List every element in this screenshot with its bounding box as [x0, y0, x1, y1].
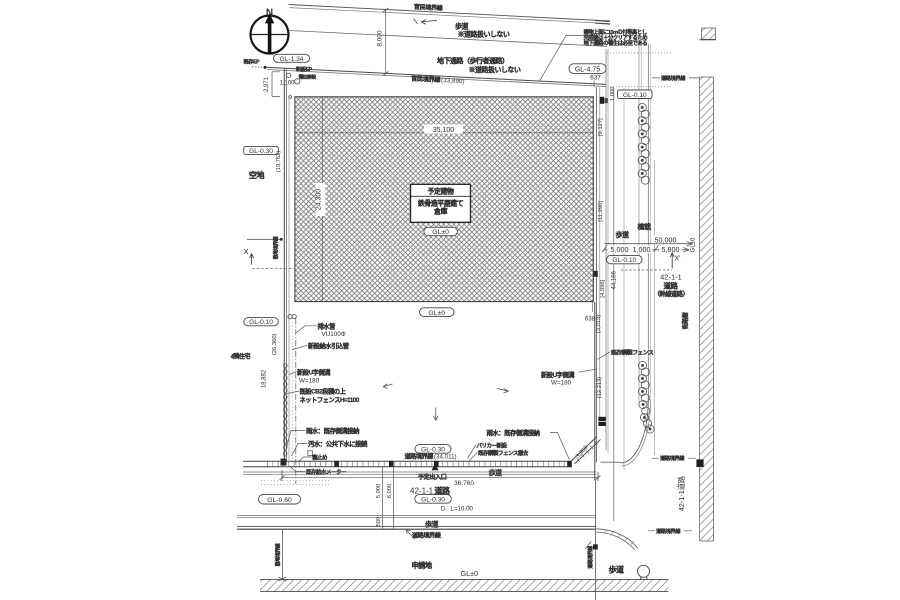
svg-text:バリカー新設: バリカー新設 — [477, 441, 508, 449]
svg-text:汚水：公共下水に接続: 汚水：公共下水に接続 — [308, 439, 368, 448]
svg-text:ネットフェンスH=1100: ネットフェンスH=1100 — [300, 396, 360, 404]
svg-text:道路境界線: 道路境界線 — [656, 527, 681, 535]
svg-text:638: 638 — [585, 316, 596, 322]
svg-text:空地: 空地 — [249, 170, 264, 180]
svg-text:道路境界線: 道路境界線 — [412, 532, 442, 540]
svg-text:5,000: 5,000 — [376, 484, 382, 499]
svg-text:42-1-1: 42-1-1 — [660, 273, 682, 282]
svg-text:敷地境界線: 敷地境界線 — [274, 543, 281, 566]
svg-text:4隣住宅: 4隣住宅 — [231, 353, 251, 361]
svg-text:既存鋼製フェンス撤去: 既存鋼製フェンス撤去 — [478, 449, 529, 457]
svg-text:D. L=10.00: D. L=10.00 — [441, 506, 474, 513]
svg-text:新設U字側溝: 新設U字側溝 — [297, 367, 331, 376]
svg-text:GL-0.60: GL-0.60 — [267, 497, 292, 504]
svg-text:歩道: 歩道 — [609, 565, 624, 575]
svg-text:排水管: 排水管 — [318, 322, 337, 331]
svg-text:寝止め: 寝止め — [311, 454, 328, 462]
svg-text:[4,998]: [4,998] — [600, 279, 606, 297]
svg-text:GL-0.30: GL-0.30 — [421, 497, 445, 504]
svg-text:※道路扱いしない: ※道路扱いしない — [458, 30, 510, 39]
svg-text:6,000: 6,000 — [387, 484, 393, 499]
svg-text:新設給水引込管: 新設給水引込管 — [308, 341, 350, 350]
svg-text:申請地: 申請地 — [412, 561, 433, 570]
svg-text:雨水：既存側溝接納: 雨水：既存側溝接納 — [487, 428, 541, 437]
svg-text:地下通路（歩行者通路）: 地下通路（歩行者通路） — [437, 56, 509, 65]
svg-text:42-1-1道路: 42-1-1道路 — [677, 476, 686, 511]
svg-text:道路境界線: 道路境界線 — [660, 454, 685, 462]
svg-text:36,760: 36,760 — [454, 480, 474, 487]
svg-text:既存鋼製フェンス: 既存鋼製フェンス — [611, 348, 654, 356]
svg-text:GL±0: GL±0 — [461, 569, 479, 578]
svg-text:1,100: 1,100 — [280, 80, 296, 86]
svg-text:2,971: 2,971 — [264, 76, 270, 92]
svg-text:道路: 道路 — [435, 486, 451, 496]
svg-text:N: N — [266, 8, 273, 19]
svg-text:電柱移設: 電柱移設 — [299, 73, 317, 80]
svg-text:44,166: 44,166 — [612, 270, 618, 289]
svg-text:街路樹: 街路樹 — [682, 312, 690, 330]
svg-text:5,800: 5,800 — [662, 245, 680, 254]
svg-text:道路境界線: 道路境界線 — [661, 74, 686, 82]
svg-text:GL-1.34: GL-1.34 — [280, 56, 304, 63]
svg-text:35,100: 35,100 — [433, 127, 455, 134]
svg-text:W=180: W=180 — [299, 377, 320, 384]
svg-text:637: 637 — [590, 75, 601, 82]
svg-text:植栽: 植栽 — [637, 222, 652, 231]
svg-text:GL±0: GL±0 — [428, 310, 445, 317]
svg-text:（幹線道路）: （幹線道路） — [654, 289, 689, 298]
svg-text:倉庫: 倉庫 — [433, 207, 447, 216]
svg-text:※道路扱いしない: ※道路扱いしない — [469, 65, 521, 74]
svg-text:GL-0.30: GL-0.30 — [249, 148, 273, 155]
svg-text:8,000: 8,000 — [377, 30, 384, 47]
svg-text:24,300: 24,300 — [316, 189, 323, 211]
svg-text:50,000: 50,000 — [655, 235, 677, 244]
svg-text:官民境界線: 官民境界線 — [414, 3, 444, 12]
svg-text:1,000: 1,000 — [633, 245, 651, 254]
svg-text:新設EP: 新設EP — [296, 65, 313, 73]
svg-text:既設CB2段積の上: 既設CB2段積の上 — [300, 387, 347, 396]
svg-text:18,882: 18,882 — [261, 369, 267, 388]
svg-text:(3,019): (3,019) — [596, 315, 602, 333]
svg-text:(33,890): (33,890) — [441, 77, 465, 85]
svg-text:歩道: 歩道 — [455, 22, 468, 31]
svg-text:(12,213): (12,213) — [597, 377, 603, 399]
svg-text:雨水：既存側溝接納: 雨水：既存側溝接納 — [306, 426, 360, 435]
svg-text:W=180: W=180 — [551, 379, 572, 386]
svg-text:新設U字側溝: 新設U字側溝 — [541, 370, 575, 379]
svg-text:500: 500 — [376, 517, 382, 527]
svg-text:(19,762): (19,762) — [276, 151, 282, 173]
svg-text:道路境界線: 道路境界線 — [405, 452, 435, 460]
svg-text:地下通路の養生は必至である: 地下通路の養生は必至である — [584, 39, 648, 47]
svg-text:(34,011): (34,011) — [434, 454, 457, 461]
svg-text:GL-4.75: GL-4.75 — [575, 66, 600, 73]
svg-text:[11,990]: [11,990] — [598, 201, 604, 222]
svg-text:X: X — [244, 247, 249, 256]
svg-text:道路境界線: 道路境界線 — [587, 546, 594, 569]
svg-text:[9,127]: [9,127] — [598, 118, 604, 136]
svg-text:1,000: 1,000 — [610, 87, 616, 102]
svg-text:GL-0.10: GL-0.10 — [249, 319, 273, 326]
svg-text:VU100Φ: VU100Φ — [322, 331, 346, 338]
svg-text:道路: 道路 — [664, 280, 679, 290]
svg-text:既存EP: 既存EP — [244, 57, 261, 65]
svg-text:敷地境界線: 敷地境界線 — [273, 236, 280, 259]
svg-text:X': X' — [675, 255, 681, 262]
svg-text:歩道: 歩道 — [616, 230, 630, 239]
svg-text:予定出入口: 予定出入口 — [418, 473, 447, 481]
svg-text:5,000: 5,000 — [611, 245, 629, 254]
svg-text:GL-0.10: GL-0.10 — [612, 257, 636, 264]
svg-text:GL±0: GL±0 — [690, 237, 696, 252]
svg-text:(26,360): (26,360) — [272, 333, 278, 355]
svg-text:鉄骨造平屋建て: 鉄骨造平屋建て — [418, 198, 464, 207]
svg-text:GL-0.10: GL-0.10 — [623, 92, 647, 99]
svg-text:予定建物: 予定建物 — [428, 186, 454, 195]
svg-text:GL±0: GL±0 — [432, 229, 449, 236]
